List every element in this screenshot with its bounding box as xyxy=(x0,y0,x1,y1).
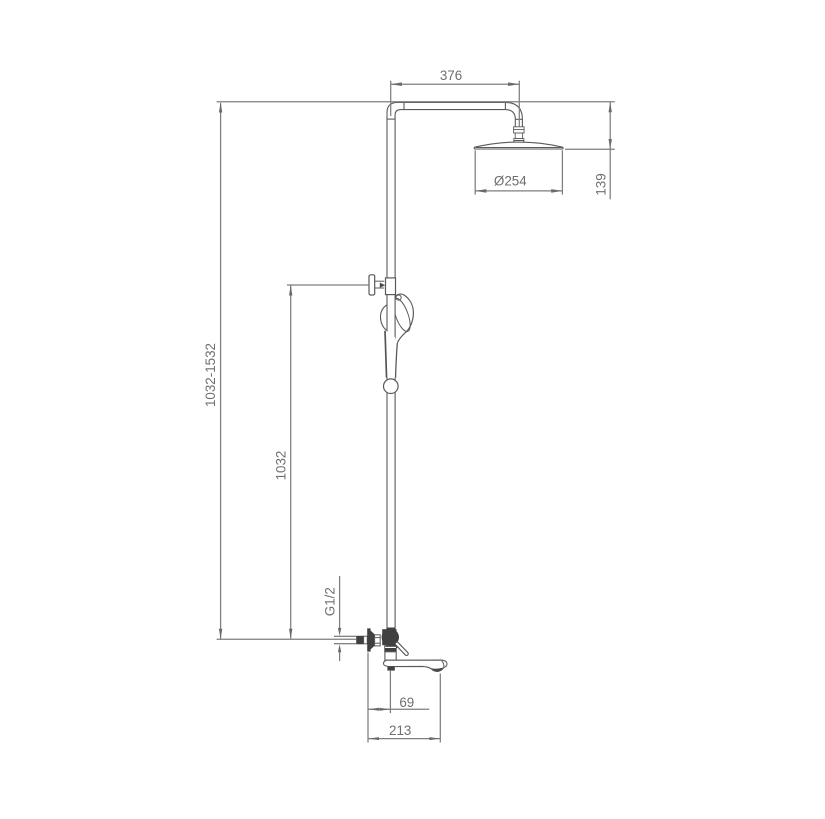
svg-text:213: 213 xyxy=(389,723,411,738)
svg-text:139: 139 xyxy=(594,173,609,195)
svg-text:1032-1532: 1032-1532 xyxy=(203,343,218,407)
svg-text:G1/2: G1/2 xyxy=(323,587,338,616)
svg-text:69: 69 xyxy=(399,695,414,710)
svg-text:376: 376 xyxy=(440,68,462,83)
svg-text:Ø254: Ø254 xyxy=(494,174,527,189)
svg-text:1032: 1032 xyxy=(274,451,289,481)
